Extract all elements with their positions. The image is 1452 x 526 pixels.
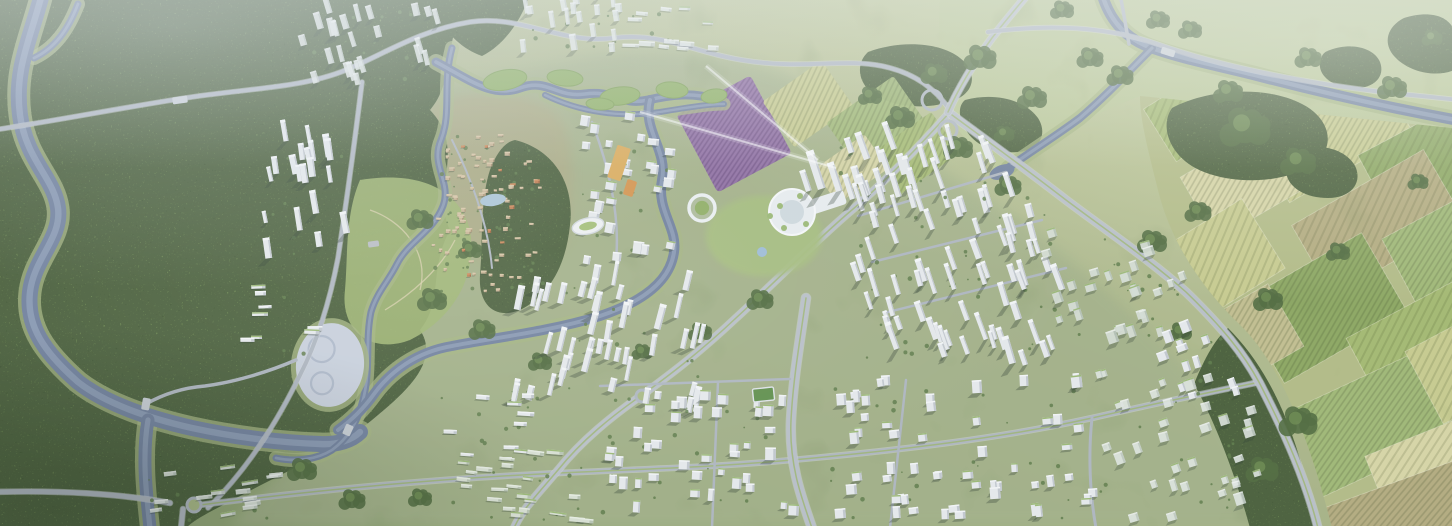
aerial-scene bbox=[0, 0, 1452, 526]
atmosphere-layer bbox=[0, 0, 1452, 526]
masterplan-aerial-view bbox=[0, 0, 1452, 526]
shade-bottom-left bbox=[0, 0, 1452, 526]
